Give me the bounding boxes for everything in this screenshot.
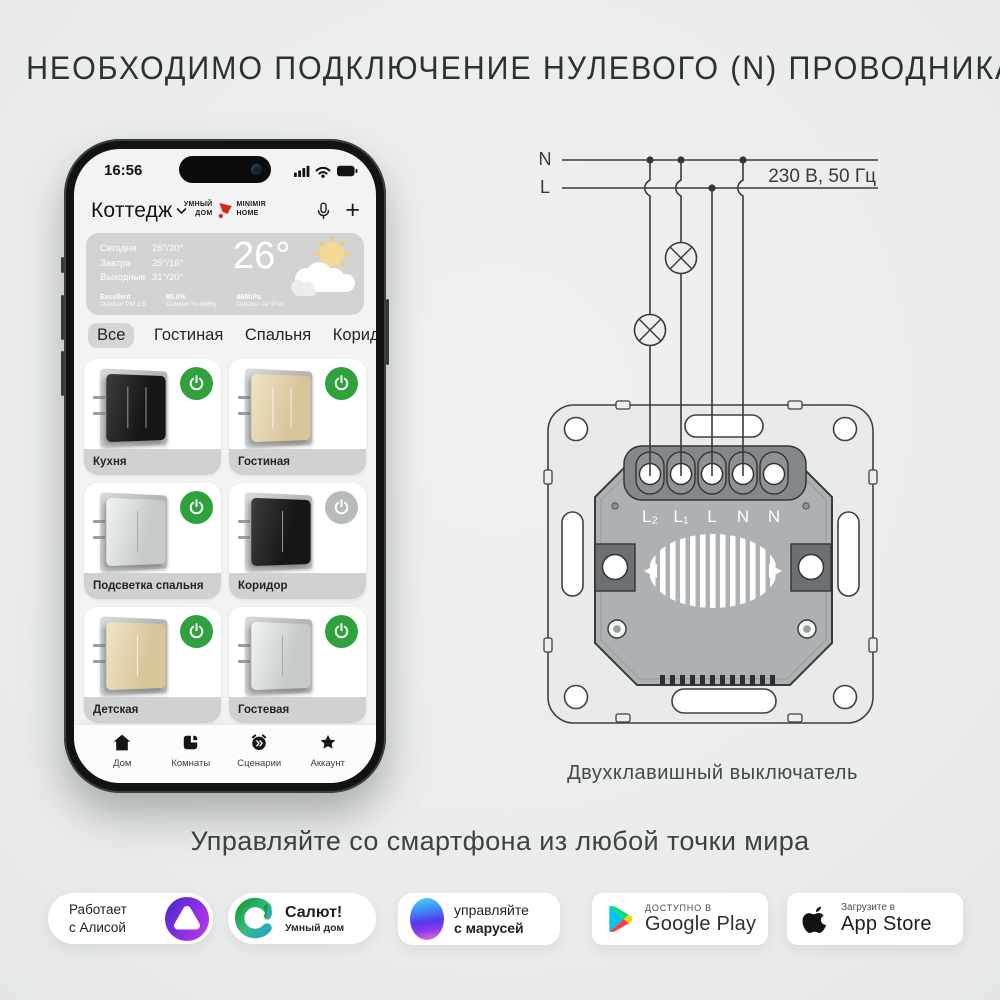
microphone-icon[interactable] <box>315 199 332 223</box>
device-name: Подсветка спальня <box>84 573 221 599</box>
lamp-icon <box>635 315 666 346</box>
device-card-guest-room[interactable]: Гостевая <box>229 607 366 723</box>
device-grid: Кухня Гостиная <box>84 359 366 757</box>
alice-icon <box>165 897 209 941</box>
badge-alice[interactable]: Работает с Алисой <box>48 893 213 944</box>
power-icon <box>187 374 206 393</box>
phone-mockup: 16:56 <box>64 139 386 793</box>
power-icon <box>187 498 206 517</box>
voltage-label: 230 В, 50 Гц <box>768 166 876 187</box>
current-temperature: 26° <box>233 235 290 278</box>
weather-widget[interactable]: Сегодня26°/20° Завтра25°/16° Выходные31°… <box>86 233 364 315</box>
switch-mechanism <box>544 401 877 723</box>
top-heading: НЕОБХОДИМО ПОДКЛЮЧЕНИЕ НУЛЕВОГО (N) ПРОВ… <box>0 50 1000 87</box>
device-card-living-room[interactable]: Гостиная <box>229 359 366 475</box>
svg-text:L₂: L₂ <box>642 507 658 526</box>
power-toggle[interactable] <box>180 615 213 648</box>
badge-app-store[interactable]: Загрузите в App Store <box>787 893 963 945</box>
badge-google-play[interactable]: ДОСТУПНО В Google Play <box>592 893 768 945</box>
dynamic-island <box>179 156 271 183</box>
switch-image <box>237 614 329 698</box>
tab-corridor[interactable]: Коридор <box>331 323 376 348</box>
power-toggle[interactable] <box>325 491 358 524</box>
bottom-heading: Управляйте со смартфона из любой точки м… <box>0 826 1000 857</box>
svg-text:L₁: L₁ <box>673 507 688 526</box>
power-icon <box>332 622 351 641</box>
device-name: Кухня <box>84 449 221 475</box>
brand-flame-icon <box>216 201 232 219</box>
svg-text:L: L <box>707 507 716 526</box>
home-icon <box>112 733 132 752</box>
power-toggle[interactable] <box>180 491 213 524</box>
sun-cloud-icon <box>284 235 360 304</box>
device-card-kids-room[interactable]: Детская <box>84 607 221 723</box>
marusya-icon <box>410 898 444 940</box>
wiring-diagram-svg: N L 230 В, 50 Гц <box>520 140 980 765</box>
power-button <box>386 299 389 365</box>
camera-icon <box>251 164 262 175</box>
google-play-icon <box>605 903 635 935</box>
nav-item-scenarios[interactable]: Сценарии <box>230 733 288 783</box>
badge-salut[interactable]: Салют! Умный дом <box>228 893 376 944</box>
home-name-label: Коттедж <box>91 199 172 223</box>
tab-bedroom[interactable]: Спальня <box>243 323 313 348</box>
tab-living-room[interactable]: Гостиная <box>152 323 225 348</box>
lamp-icon <box>666 243 697 274</box>
junction-dots <box>646 156 746 191</box>
brand-logo: УМНЫЙ ДОМ MINIMIR HOME <box>184 201 266 219</box>
forecast-rows: Сегодня26°/20° Завтра25°/16° Выходные31°… <box>100 242 183 286</box>
volume-up-button <box>61 295 64 340</box>
power-icon <box>187 622 206 641</box>
phone-bottom-nav: Дом Комнаты <box>74 725 376 783</box>
rooms-icon <box>181 733 200 752</box>
power-toggle[interactable] <box>325 615 358 648</box>
nav-item-account[interactable]: Аккаунт <box>299 733 357 783</box>
weather-stats: ExcellentOutdoor PM 2.5 85.0%Outdoor Hum… <box>100 294 285 308</box>
nav-item-rooms[interactable]: Комнаты <box>162 733 220 783</box>
switch-image <box>92 366 184 450</box>
star-icon <box>318 733 338 752</box>
apple-icon <box>802 903 830 935</box>
switch-image <box>92 614 184 698</box>
phone-screen: 16:56 <box>74 149 376 783</box>
brand-text: УМНЫЙ <box>184 201 213 210</box>
side-screw <box>799 555 824 580</box>
svg-text:N: N <box>737 507 749 526</box>
nav-item-home[interactable]: Дом <box>93 733 151 783</box>
svg-text:N: N <box>768 507 780 526</box>
power-icon <box>332 498 351 517</box>
status-icons <box>294 163 358 183</box>
home-selector[interactable]: Коттедж <box>91 199 187 223</box>
signal-wifi-battery-icon <box>294 163 358 178</box>
device-card-bedroom-light[interactable]: Подсветка спальня <box>84 483 221 599</box>
device-card-kitchen[interactable]: Кухня <box>84 359 221 475</box>
badge-marusya[interactable]: управляйте с марусей <box>398 893 560 945</box>
switch-image <box>92 490 184 574</box>
volume-down-button <box>61 351 64 396</box>
room-tabs: Все Гостиная Спальня Коридор <box>88 323 376 348</box>
app-header: Коттедж УМНЫЙ ДОМ MINIMIR <box>74 195 376 229</box>
device-name: Детская <box>84 697 221 723</box>
power-toggle[interactable] <box>325 367 358 400</box>
switch-image <box>237 366 329 450</box>
wiring-diagram: N L 230 В, 50 Гц <box>520 140 980 765</box>
status-time: 16:56 <box>104 162 142 179</box>
l-line-label: L <box>540 177 550 197</box>
n-line-label: N <box>539 149 552 169</box>
device-name: Коридор <box>229 573 366 599</box>
add-device-button[interactable]: + <box>345 198 360 223</box>
diagram-caption: Двухклавишный выключатель <box>540 762 885 785</box>
salut-icon <box>231 895 279 943</box>
side-screw <box>603 555 628 580</box>
power-icon <box>332 374 351 393</box>
tab-all[interactable]: Все <box>88 323 134 348</box>
device-name: Гостевая <box>229 697 366 723</box>
scenarios-icon <box>249 733 269 752</box>
mute-switch <box>61 257 64 273</box>
device-name: Гостиная <box>229 449 366 475</box>
power-toggle[interactable] <box>180 367 213 400</box>
page-canvas: НЕОБХОДИМО ПОДКЛЮЧЕНИЕ НУЛЕВОГО (N) ПРОВ… <box>0 0 1000 1000</box>
device-card-corridor[interactable]: Коридор <box>229 483 366 599</box>
switch-image <box>237 490 329 574</box>
